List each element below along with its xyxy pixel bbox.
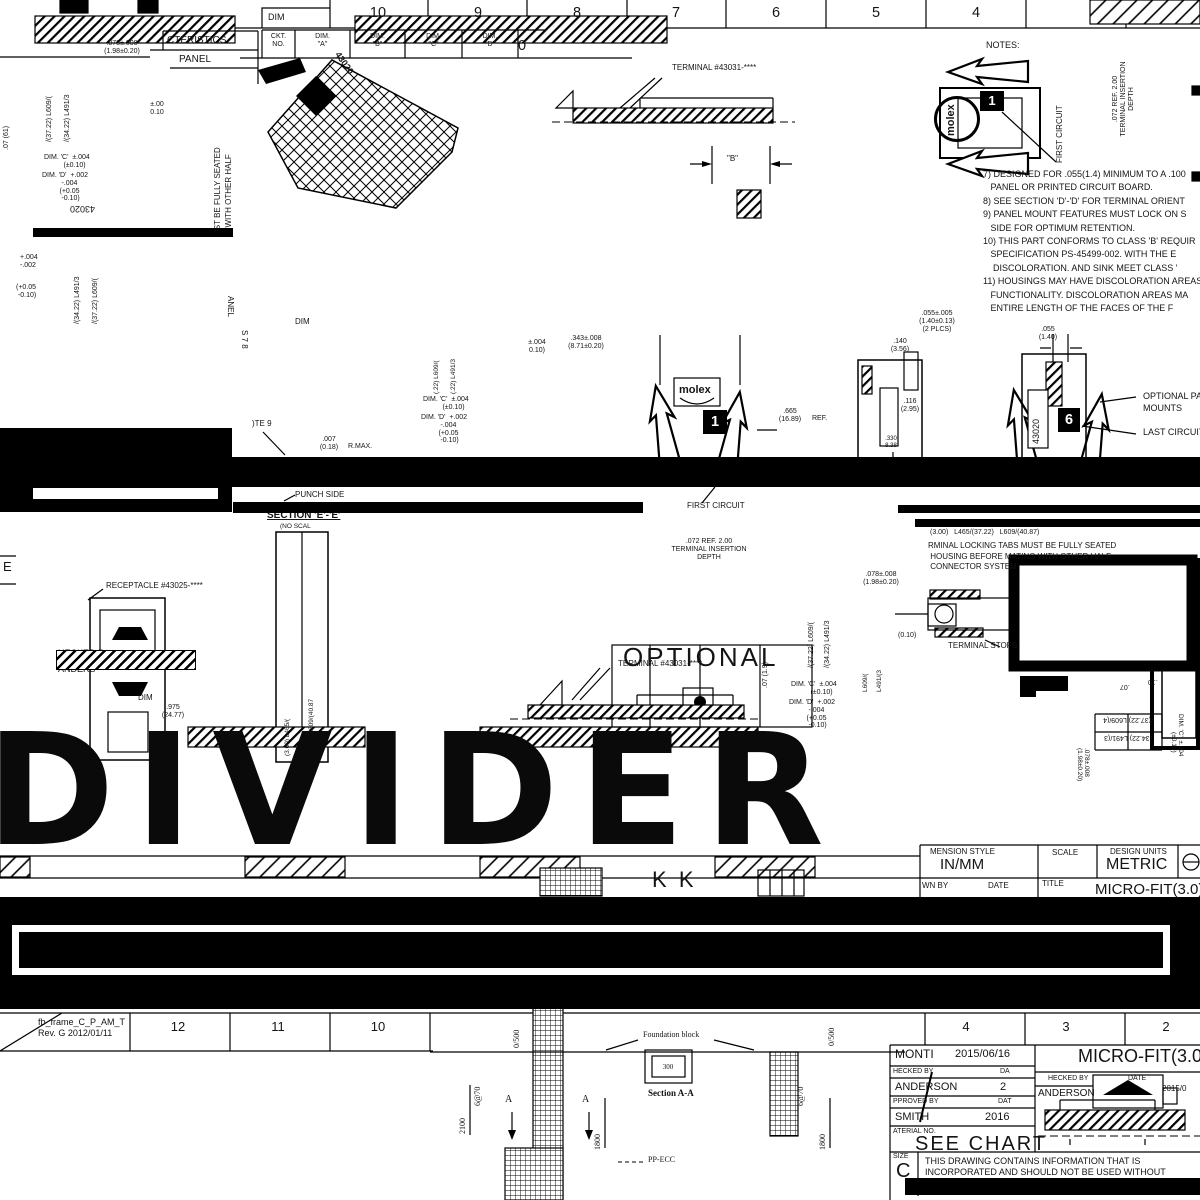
ruler-cell: 4 (956, 5, 996, 21)
section-arrow-label: A (505, 1094, 512, 1105)
first-circuit-label: FIRST CIRCUIT (1056, 105, 1065, 163)
confidentiality-note: THIS DRAWING CONTAINS INFORMATION THAT I… (925, 1156, 1140, 1166)
dim-text: L609/( (862, 674, 869, 692)
part-number-43020: 43020 (70, 204, 95, 214)
panel-vertical-fragment: ANEL (225, 296, 234, 317)
approved-by-label: PPROVED BY (893, 1098, 939, 1106)
checked-by-label: HECKED BY (893, 1068, 933, 1076)
dim-text: +.004 -.002 (20, 254, 38, 270)
col-header: DIM. "B" (350, 33, 405, 49)
dim-text: REF. (812, 415, 827, 423)
note9-fragment: )TE 9 (252, 420, 272, 429)
dim-text: .116 (2.95) (895, 398, 925, 414)
redaction-outline-box (12, 925, 1170, 975)
ruler-cell: 8 (557, 5, 597, 21)
title-label: TITLE (1042, 880, 1064, 889)
dim-text: /(37.22) L609/( (46, 96, 54, 142)
ruler-cell: 2 (1146, 1020, 1186, 1035)
mirrored-dim: DIM. 'C' ±.004 (±0.10) (1169, 714, 1184, 757)
divider-watermark: DIVIDER (0, 700, 844, 881)
section-arrow-label: A (582, 1094, 589, 1105)
dim-text: ±.00 0.10 (144, 101, 170, 117)
redaction-bar (898, 505, 1200, 513)
dim-text: /(37.22) L609/( (808, 622, 816, 668)
approved-by-value: SMITH (895, 1111, 929, 1123)
ruler-cell: 9 (458, 5, 498, 21)
dim-text: /(34.22) L491/3 (64, 95, 72, 142)
mirrored-dim: .10 (1148, 677, 1158, 685)
redaction-bar (33, 228, 233, 237)
punch-side-label: PUNCH SIDE (295, 491, 344, 500)
date-label: DATE (988, 882, 1009, 891)
ruler-cell: 10 (358, 5, 398, 21)
checked-date: 2015/0 (1162, 1085, 1186, 1094)
dim-text: (.22) L609/( (433, 360, 440, 394)
material-value: SEE CHART (915, 1133, 1047, 1155)
dim-text: .007 (0.18) (314, 436, 344, 452)
scale-label: SCALE (1052, 849, 1078, 858)
last-circuit-label: LAST CIRCUIT (1143, 427, 1200, 437)
col-header: DIM. "D" (462, 33, 518, 49)
dim-text: 0/500 (513, 1030, 522, 1048)
dim-text: DIM. 'D' +.002 -.004 (+0.05 -0.10) (421, 414, 467, 445)
date-label: DA (1000, 1068, 1010, 1076)
molex-logo-text: molex (945, 104, 957, 136)
design-units-value: METRIC (1106, 856, 1167, 874)
dim-text: .07 (61) (3, 126, 11, 150)
zone-letter: 0 (518, 38, 526, 54)
first-circuit-marker: 1 (980, 91, 1004, 111)
ruler-dim-label: DIM (268, 12, 285, 22)
checked-by-value: ANDERSON (895, 1081, 957, 1093)
dim-table-row: (3.00) L465/(37.22) L609/(40.87) (930, 529, 1039, 537)
drawn-by-label: WN BY (922, 882, 948, 891)
dim-text: 6@70 (474, 1087, 483, 1106)
dim-text: .343±.008 (8.71±0.20) (558, 335, 614, 351)
receptacle-label: RECEPTACLE #43025-**** (106, 582, 203, 591)
dim-text: /(34.22) L491/3 (824, 621, 832, 668)
part-number-43020: 43020 (1031, 419, 1041, 444)
dim-label: DIM (295, 318, 310, 327)
dim-text: L491/(3 (876, 670, 883, 692)
redaction-bar (915, 519, 1200, 527)
last-circuit-marker: 6 (1058, 408, 1080, 432)
optional-panel-mounts-label: MOUNTS (1143, 403, 1182, 413)
redaction-bar (905, 1178, 1200, 1195)
terminal-stops-label: TERMINAL STOPS (948, 642, 1017, 651)
dim-text: 300 (650, 1064, 686, 1072)
col-header: DIM. "C" (405, 33, 462, 49)
insertion-depth-label: .072 REF. 2.00 TERMINAL INSERTION DEPTH (1112, 56, 1135, 142)
other-half-note: G WITH OTHER HALF (225, 154, 234, 236)
s78-fragment: S 7 8 (239, 330, 248, 349)
char-table-header: CTERISTICS (167, 35, 226, 46)
dim-text: .07 (1.9) (762, 662, 770, 688)
dim-text: ±.004 0.10) (522, 339, 552, 355)
ruler-cell: 12 (158, 1020, 198, 1035)
dim-text: DIM. 'C' ±.004 (±0.10) (791, 681, 837, 697)
checked-by-label: HECKED BY (1048, 1075, 1088, 1083)
dim-text: .055 (1.40) (1033, 326, 1063, 342)
no-scale-label: (NO SCAL (280, 523, 311, 530)
foundation-block-label: Foundation block (643, 1031, 699, 1040)
frame-revision: Rev. G 2012/01/11 (38, 1028, 112, 1038)
fully-seated-note: UST BE FULLY SEATED (214, 147, 223, 236)
mirrored-dim: .078±.008 (1.98±0.20) (1075, 748, 1090, 781)
dim-text: .140 (3.56) (885, 338, 915, 354)
dim-text: DIM. 'C' ±.004 (±0.10) (44, 154, 90, 170)
ruler-cell: 11 (258, 1020, 298, 1035)
confidentiality-note: INCORPORATED AND SHOULD NOT BE USED WITH… (925, 1167, 1166, 1177)
dim-text: 1800 (819, 1134, 828, 1150)
notes-body: 7) DESIGNED FOR .055(1.4) MINIMUM TO A .… (983, 168, 1200, 315)
dim-text: .330 8.38 (880, 436, 902, 449)
section-aa-label: Section A-A (648, 1088, 694, 1098)
date-label: DAT (998, 1098, 1011, 1106)
dim-text: 0/500 (828, 1028, 837, 1046)
dim-text: 2100 (459, 1118, 468, 1134)
dim-text: /(34.22) L491/3 (74, 277, 82, 324)
engineering-drawing-page: 10 9 8 7 6 5 4 DIM 0 E 12 11 10 4 3 2 fb… (0, 0, 1200, 1200)
redaction-slot (33, 488, 218, 499)
dim-text: 6@70 (797, 1087, 806, 1106)
redaction-bar (233, 502, 643, 513)
dim-text: /(37.22) L609/( (92, 278, 100, 324)
dim-text: .665 (16.89) (770, 408, 810, 424)
dim-text: (.22) L491/3 (450, 359, 457, 394)
mirrored-dim: (34.22) L491/(3 (1095, 733, 1161, 741)
dim-text: R.MAX. (348, 443, 372, 451)
dim-text: (+0.05 -0.10) (16, 284, 36, 300)
notes-title: NOTES: (986, 40, 1020, 50)
zone-letter-e: E (3, 560, 12, 575)
dim-text: .078±.008 (1.98±0.20) (93, 40, 151, 56)
optional-panel-mounts-label: OPTIONAL PANEL (1143, 391, 1200, 401)
ruler-cell: 5 (856, 5, 896, 21)
b-dim-label: "B" (727, 155, 738, 164)
dim-text: 1800 (594, 1134, 603, 1150)
drawn-date: 2015/06/16 (955, 1048, 1010, 1060)
dim-text: .055±.005 (1.40±0.13) (2 PLCS) (906, 310, 968, 333)
char-table-sub: PANEL (179, 54, 211, 65)
first-circuit-label: FIRST CIRCUIT (687, 502, 745, 511)
redaction-bar (0, 428, 232, 512)
checked-date: 2 (1000, 1081, 1006, 1093)
mirrored-dim: .07 (1120, 682, 1130, 690)
dim-text: .078±.008 (1.98±0.20) (852, 571, 910, 587)
drawn-by-value: MONTI (895, 1048, 934, 1061)
ruler-cell: 6 (756, 5, 796, 21)
molex-logo-text: molex (679, 384, 711, 396)
ruler-cell: 7 (656, 5, 696, 21)
redaction-bar (232, 457, 1200, 487)
ruler-cell: 3 (1046, 1020, 1086, 1035)
dim-style-value: IN/MM (940, 857, 984, 874)
insertion-depth-label: .072 REF. 2.00 TERMINAL INSERTION DEPTH (663, 538, 755, 561)
approved-date: 2016 (985, 1111, 1009, 1123)
checked-by-value: ANDERSON (1038, 1088, 1095, 1099)
col-header: CKT. NO. (262, 33, 295, 49)
pp-ecc-label: PP-ECC (648, 1156, 675, 1165)
first-circuit-marker: 1 (703, 410, 727, 434)
dim-text: DIM. 'D' +.002 -.004 (+0.05 -0.10) (42, 172, 88, 203)
date-label: DATE (1128, 1075, 1146, 1083)
ruler-cell: 4 (946, 1020, 986, 1035)
locking-note: RMINAL LOCKING TABS MUST BE FULLY SEATED… (928, 541, 1116, 573)
mirrored-dim: /(37.22) L609/(4 (1095, 715, 1161, 723)
dim-text: DIM. 'C' ±.004 (±0.10) (423, 396, 469, 412)
frame-name: fb_frame_C_P_AM_T (38, 1017, 125, 1027)
hatch-overlay (56, 650, 196, 670)
drawing-title: MICRO-FIT(3.0) (1078, 1046, 1200, 1066)
ruler-cell: 10 (358, 1020, 398, 1035)
col-header: DIM. "A" (295, 33, 350, 49)
terminal-label: TERMINAL #43031-**** (672, 64, 756, 73)
dim-text: (0.10) (898, 632, 916, 640)
optional-fragment: OPTIONAL (623, 643, 778, 672)
